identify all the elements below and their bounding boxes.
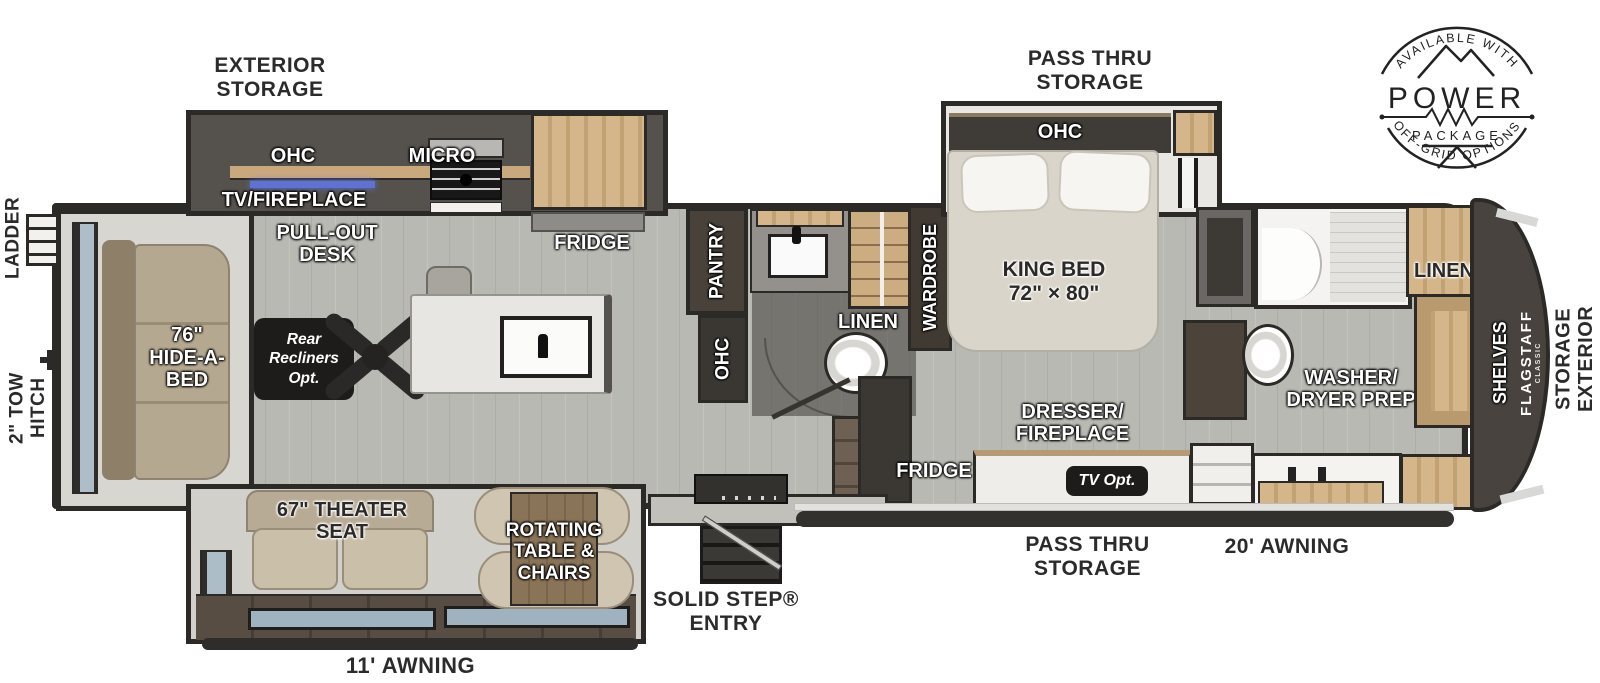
deck-window-2	[444, 606, 630, 628]
solid-step-entry-label: SOLID STEP® ENTRY	[636, 586, 816, 638]
front-vanity-faucet-1	[1288, 467, 1296, 481]
pass-thru-top-label: PASS THRU STORAGE	[1010, 44, 1170, 98]
dinette-table	[510, 492, 598, 606]
front-linen-closet	[1406, 205, 1478, 297]
bath-vanity-shelf	[756, 209, 844, 227]
hide-a-bed-sofa-back	[102, 240, 136, 480]
entry-threshold	[694, 474, 788, 504]
deck-window-1	[248, 608, 436, 630]
front-steps	[1190, 443, 1254, 505]
front-bath-mirror-cabinet	[1196, 207, 1254, 307]
wardrobe-cabinet	[908, 205, 952, 351]
led-strip	[250, 181, 375, 188]
theater-seat-cushion-1	[252, 528, 338, 590]
pillow-left	[960, 152, 1050, 213]
exterior-storage-right-label: EXTERIOR STORAGE	[1550, 294, 1600, 424]
bedroom-ohc	[949, 113, 1171, 153]
front-wood-cabinet	[1400, 454, 1480, 510]
brand-mark: FLAGSTAFF CLASSIC	[1514, 288, 1546, 438]
hide-a-bed-sofa	[134, 244, 230, 480]
ladder-icon	[26, 214, 60, 266]
bedroom-tv-cabinet	[1183, 320, 1247, 420]
awning-20-label: 20' AWNING	[1212, 533, 1362, 561]
front-toilet-fixture	[1242, 324, 1294, 386]
svg-text:AVAILABLE WITH: AVAILABLE WITH	[1392, 31, 1521, 71]
shower-tile	[1330, 212, 1406, 302]
awning-20-trim	[794, 503, 1454, 511]
bedroom-fridge-cabinet	[858, 376, 912, 504]
dresser-fireplace	[973, 450, 1192, 507]
awning-11-bar	[202, 638, 638, 650]
theater-seat-cushion-2	[342, 528, 428, 590]
awning-11-label: 11' AWNING	[328, 652, 493, 680]
pillow-right	[1058, 150, 1153, 214]
stove-front	[430, 202, 502, 213]
floorplan-diagram: LADDER 2" TOW HITCH 76" HIDE-A- BED Rear…	[0, 0, 1600, 683]
bedroom-window	[1178, 158, 1198, 208]
rear-window	[72, 222, 98, 494]
pass-thru-bottom-label: PASS THRU STORAGE	[1005, 528, 1170, 586]
pantry-cabinet	[686, 207, 748, 315]
front-vanity-faucet-2	[1318, 467, 1326, 481]
sink-faucet-icon	[538, 334, 548, 358]
awning-20-bar	[796, 511, 1454, 527]
entry-stairs	[700, 526, 782, 584]
bath-faucet-icon	[792, 226, 801, 244]
fridge-cabinet	[531, 113, 647, 210]
shower-pan	[1262, 228, 1322, 300]
brand-name: FLAGSTAFF	[1518, 310, 1535, 416]
closet-divider	[880, 212, 884, 306]
theater-seat-back	[246, 490, 434, 532]
stove-grate	[430, 160, 502, 200]
power-package-badge: AVAILABLE WITH POWER PACKAGE OFF-GRID OP…	[1362, 4, 1552, 194]
bedroom-corner-cabinet	[1173, 110, 1217, 156]
mid-ohc-cabinet	[698, 315, 748, 403]
badge-arc-top: AVAILABLE WITH	[1392, 31, 1521, 71]
microwave	[428, 138, 504, 158]
badge-title: POWER	[1388, 82, 1526, 115]
exterior-storage-top-label: EXTERIOR STORAGE	[200, 52, 340, 104]
brand-sub: CLASSIC	[1535, 342, 1542, 383]
fridge-counter	[531, 212, 645, 232]
ladder-label: LADDER	[0, 183, 26, 293]
badge-mountain-icon	[1418, 46, 1494, 78]
